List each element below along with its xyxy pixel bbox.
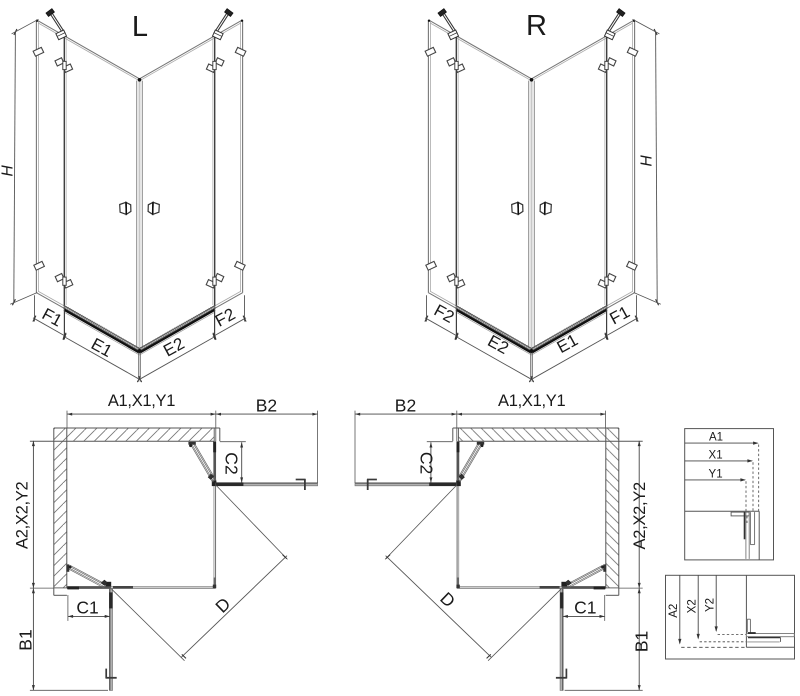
svg-text:A1: A1 xyxy=(709,431,723,443)
svg-text:R: R xyxy=(526,10,547,42)
svg-text:H: H xyxy=(0,165,17,177)
svg-text:L: L xyxy=(132,11,148,43)
svg-text:B2: B2 xyxy=(395,395,416,415)
svg-text:A1,X1,Y1: A1,X1,Y1 xyxy=(108,392,175,410)
svg-text:H: H xyxy=(639,155,656,167)
svg-text:A2,X2,Y2: A2,X2,Y2 xyxy=(631,482,649,549)
svg-text:B1: B1 xyxy=(632,631,652,652)
svg-text:X1: X1 xyxy=(709,449,723,461)
svg-text:C2: C2 xyxy=(417,452,437,474)
svg-text:A1,X1,Y1: A1,X1,Y1 xyxy=(498,392,565,410)
svg-text:C1: C1 xyxy=(76,597,98,617)
svg-text:Y1: Y1 xyxy=(709,468,723,480)
svg-text:B1: B1 xyxy=(16,629,36,650)
svg-text:B2: B2 xyxy=(256,395,277,415)
svg-text:C2: C2 xyxy=(222,452,242,474)
svg-text:C1: C1 xyxy=(574,597,596,617)
svg-text:X2: X2 xyxy=(686,599,698,613)
svg-text:Y2: Y2 xyxy=(704,598,716,612)
svg-text:A2: A2 xyxy=(668,604,680,618)
svg-text:A2,X2,Y2: A2,X2,Y2 xyxy=(14,482,32,549)
